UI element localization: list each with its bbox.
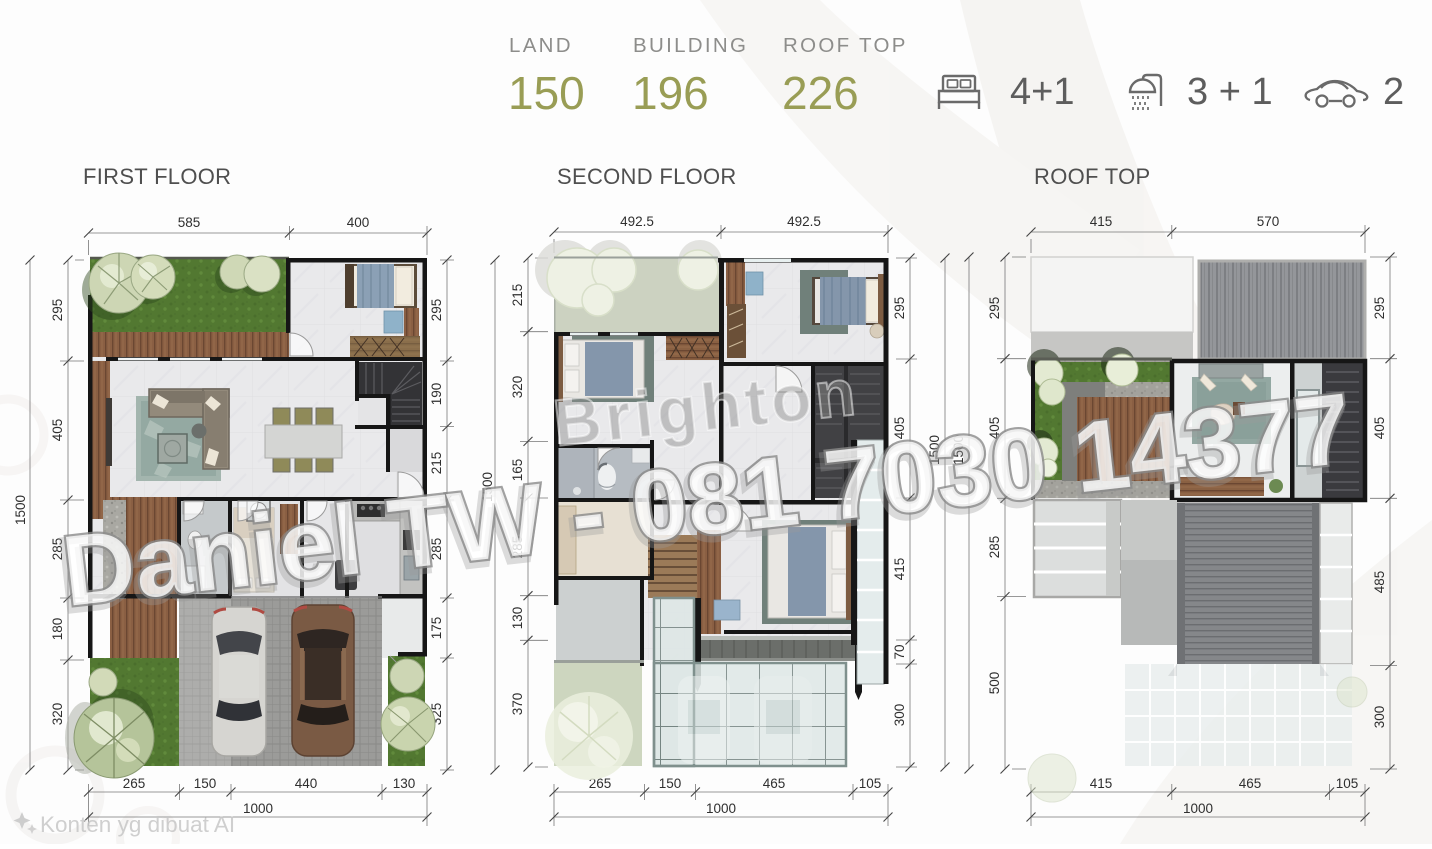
svg-text:ROOF TOP: ROOF TOP <box>783 34 908 57</box>
svg-text:585: 585 <box>178 215 201 230</box>
svg-text:415: 415 <box>892 558 907 581</box>
svg-text:285: 285 <box>987 536 1002 559</box>
svg-text:370: 370 <box>510 693 525 716</box>
svg-text:320: 320 <box>510 376 525 399</box>
svg-text:300: 300 <box>1372 706 1387 729</box>
svg-text:440: 440 <box>295 776 318 791</box>
svg-text:300: 300 <box>892 704 907 727</box>
svg-text:465: 465 <box>1239 776 1262 791</box>
svg-text:415: 415 <box>1090 214 1113 229</box>
svg-text:FIRST FLOOR: FIRST FLOOR <box>83 164 231 189</box>
svg-text:150: 150 <box>508 67 585 119</box>
svg-text:400: 400 <box>347 215 370 230</box>
svg-text:BUILDING: BUILDING <box>633 34 748 57</box>
svg-text:492.5: 492.5 <box>787 214 821 229</box>
svg-text:175: 175 <box>429 617 444 640</box>
svg-text:226: 226 <box>782 67 859 119</box>
svg-text:320: 320 <box>50 703 65 726</box>
svg-text:196: 196 <box>632 67 709 119</box>
svg-text:570: 570 <box>1257 214 1280 229</box>
svg-text:130: 130 <box>393 776 416 791</box>
svg-text:215: 215 <box>510 284 525 307</box>
svg-text:1000: 1000 <box>1183 801 1213 816</box>
svg-text:4+1: 4+1 <box>1010 71 1074 113</box>
svg-text:Konten yg dibuat AI: Konten yg dibuat AI <box>40 812 235 837</box>
svg-text:265: 265 <box>123 776 146 791</box>
svg-text:295: 295 <box>429 299 444 322</box>
svg-text:150: 150 <box>659 776 682 791</box>
svg-text:105: 105 <box>859 776 882 791</box>
svg-text:500: 500 <box>987 672 1002 695</box>
svg-text:405: 405 <box>1372 417 1387 440</box>
svg-text:150: 150 <box>194 776 217 791</box>
svg-text:SECOND FLOOR: SECOND FLOOR <box>557 164 737 189</box>
svg-text:405: 405 <box>50 419 65 442</box>
svg-text:3 + 1: 3 + 1 <box>1187 71 1273 113</box>
svg-text:105: 105 <box>1336 776 1359 791</box>
svg-text:492.5: 492.5 <box>620 214 654 229</box>
svg-text:70: 70 <box>892 644 907 659</box>
svg-text:ROOF TOP: ROOF TOP <box>1034 164 1151 189</box>
svg-text:485: 485 <box>1372 571 1387 594</box>
svg-text:465: 465 <box>763 776 786 791</box>
svg-text:1000: 1000 <box>706 801 736 816</box>
svg-text:2: 2 <box>1383 71 1404 113</box>
svg-text:1500: 1500 <box>13 495 28 525</box>
svg-text:295: 295 <box>987 297 1002 320</box>
svg-text:215: 215 <box>429 452 444 475</box>
svg-text:415: 415 <box>1090 776 1113 791</box>
svg-text:190: 190 <box>429 383 444 406</box>
svg-text:295: 295 <box>50 299 65 322</box>
svg-text:295: 295 <box>892 297 907 320</box>
svg-text:295: 295 <box>1372 297 1387 320</box>
svg-text:130: 130 <box>510 607 525 630</box>
svg-text:LAND: LAND <box>509 34 573 57</box>
svg-text:180: 180 <box>50 618 65 641</box>
svg-text:1000: 1000 <box>243 801 273 816</box>
